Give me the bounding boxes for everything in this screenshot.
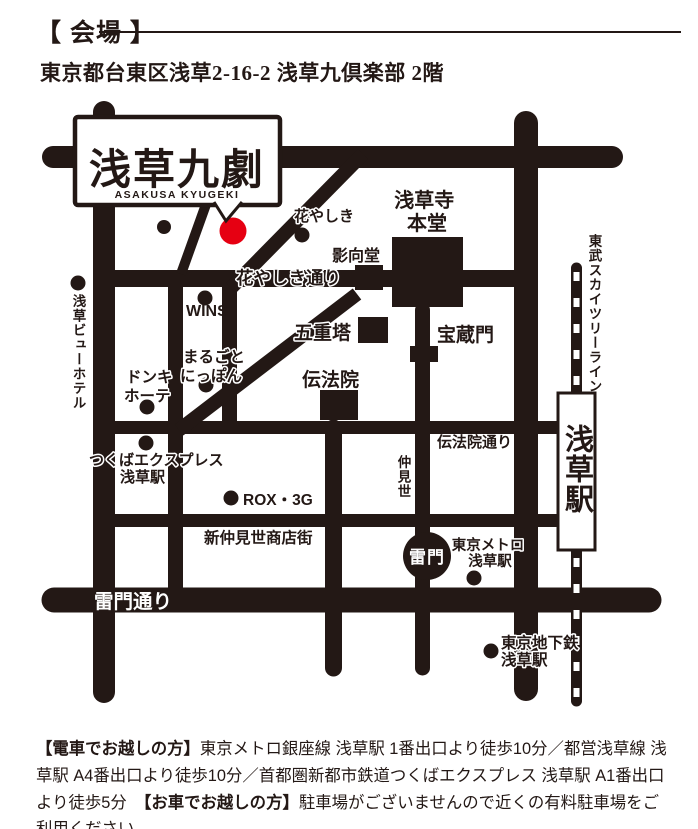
label-tokyo-chikatetsu: 東京地下鉄 浅草駅 <box>501 633 583 669</box>
dot-chikatetsu-station <box>484 644 499 659</box>
gojunoto-building <box>358 317 388 343</box>
dot-hanayashiki <box>295 228 310 243</box>
access-car-heading: 【お車でお越しの方】 <box>143 794 299 812</box>
dot-unlabeled <box>157 220 171 234</box>
label-hanayashiki: 花やしき <box>294 207 354 225</box>
street-diagonal-venue <box>181 196 209 274</box>
dot-view-hotel <box>71 276 86 291</box>
label-sensoji: 浅草寺 本堂 <box>394 188 460 235</box>
label-view-hotel: 浅草ビューホテル <box>71 293 87 410</box>
venue-name-en: ASAKUSA KYUGEKI <box>115 189 240 201</box>
label-hanayashiki-dori: 花やしき通り <box>236 268 341 288</box>
kaminarimon-label: 雷門 <box>409 548 445 567</box>
access-information: 【電車でお越しの方】東京メトロ銀座線 浅草駅 1番出口より徒歩10分／都営浅草線… <box>36 736 668 829</box>
dot-rox <box>224 491 239 506</box>
label-marugoto-nippon: まるごと にっぽん <box>180 347 249 385</box>
label-denboin: 伝法院 <box>302 368 359 391</box>
kaminarimon-marker: 雷門 <box>403 532 451 580</box>
label-denboin-dori: 伝法院通り <box>437 433 512 451</box>
venue-location-dot <box>220 218 247 245</box>
label-yogodo: 影向堂 <box>332 246 380 265</box>
yogodo-building <box>355 265 383 290</box>
label-shin-nakamise: 新仲見世商店街 <box>204 528 313 547</box>
label-nakamise: 仲見世 <box>396 454 413 499</box>
asakusa-station-label: 浅草駅 <box>561 424 595 514</box>
venue-address: 東京都台東区浅草2-16-2 浅草九倶楽部 2階 <box>40 57 444 87</box>
access-train-heading: 【電車でお越しの方】 <box>36 740 200 758</box>
label-hozomon: 宝蔵門 <box>437 323 494 346</box>
label-kaminarimon-dori: 雷門通り <box>94 591 172 613</box>
denboin-building <box>320 390 358 420</box>
venue-flyer-page: 【 会場 】 東京都台東区浅草2-16-2 浅草九倶楽部 2階 <box>0 0 698 829</box>
asakusa-station-box: 浅草駅 <box>558 393 595 550</box>
venue-name-box: 浅草九劇 ASAKUSA KYUGEKI <box>75 117 280 221</box>
label-gojunoto: 五重塔 <box>294 321 352 344</box>
label-rox: ROX・3G <box>243 492 313 509</box>
label-wins: WINS <box>186 303 228 320</box>
title-rule <box>99 31 681 33</box>
hozomon-gate <box>410 346 438 362</box>
dot-tsukuba-station <box>139 436 154 451</box>
access-map: 浅草駅 雷門 <box>0 95 698 715</box>
label-tobu-skytree-line: 東武スカイツリーライン <box>587 233 603 394</box>
access-map-svg: 浅草駅 雷門 <box>0 95 698 715</box>
dot-metro-station <box>467 571 482 586</box>
venue-name: 浅草九劇 <box>89 146 265 193</box>
sensoji-hondo-building <box>392 237 463 307</box>
